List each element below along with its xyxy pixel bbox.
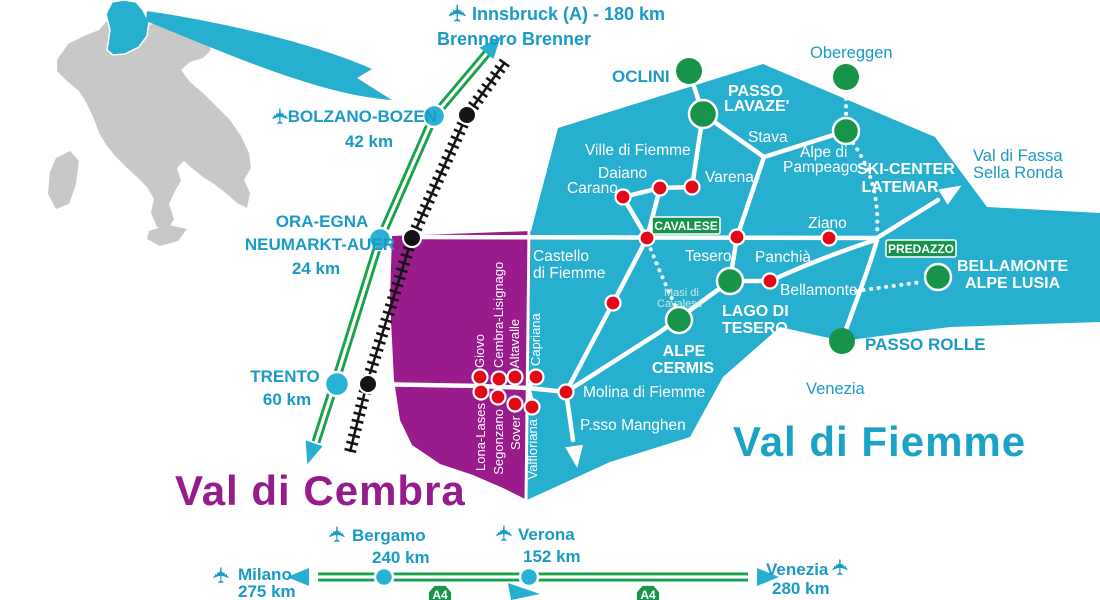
manghen-label: P.sso Manghen bbox=[580, 417, 686, 434]
town-dot-ziano bbox=[822, 231, 837, 246]
sover-label: Sover bbox=[508, 415, 523, 450]
airport-milano-icon: ✈ bbox=[209, 566, 234, 584]
ora-label-2: NEUMARKT-AUER bbox=[245, 235, 395, 254]
castello-label-1: Castello bbox=[533, 248, 589, 265]
masi-label-2: Cavalese bbox=[657, 298, 703, 310]
alpe-cermis-label-1: ALPE bbox=[663, 343, 706, 360]
trento-label: TRENTO bbox=[250, 367, 320, 386]
ski-dot-obereggen bbox=[833, 64, 859, 90]
milano-km: 275 km bbox=[238, 582, 296, 600]
giovo-label: Giovo bbox=[472, 334, 487, 368]
cavalese-badge: CAVALESE bbox=[652, 217, 720, 234]
verona-km: 152 km bbox=[523, 547, 581, 566]
stava-label: Stava bbox=[748, 129, 788, 146]
station-dot-trento bbox=[359, 375, 377, 393]
venezia-label: Venezia bbox=[766, 560, 829, 579]
val-di-fassa-label-2: Sella Ronda bbox=[973, 164, 1064, 182]
varena-label: Varena bbox=[705, 169, 754, 186]
town-dot-varena bbox=[685, 180, 700, 195]
segonzano-label: Segonzano bbox=[491, 409, 506, 475]
bellamonte-label: Bellamonte bbox=[780, 282, 858, 299]
predazzo-badge: PREDAZZO bbox=[886, 240, 956, 257]
predazzo-badge-label: PREDAZZO bbox=[888, 242, 954, 256]
a4-badge-west: A4 bbox=[428, 585, 452, 600]
town-dot-giovo bbox=[473, 370, 488, 385]
ski-dot-alpe-lusia bbox=[925, 264, 951, 290]
val-di-fassa-label-1: Val di Fassa bbox=[973, 147, 1063, 165]
city-dot-verona bbox=[520, 568, 538, 586]
ski-dot-alpe-cermis bbox=[666, 307, 692, 333]
alpe-lusia-label-2: ALPE LUSIA bbox=[965, 275, 1061, 292]
airport-verona-icon: ✈ bbox=[492, 524, 517, 542]
innsbruck-label: Innsbruck (A) - 180 km bbox=[472, 4, 665, 24]
airport-venezia-icon: ✈ bbox=[828, 558, 853, 576]
town-dot-capriana bbox=[529, 370, 544, 385]
carano-label: Carano bbox=[567, 180, 618, 197]
a4-badge-east: A4 bbox=[636, 585, 660, 600]
city-dot-trento bbox=[325, 372, 349, 396]
brenner-arrow-south bbox=[299, 441, 323, 467]
town-dot-segonzano bbox=[491, 390, 506, 405]
station-dot-ora bbox=[403, 229, 421, 247]
val-di-cembra-title: Val di Cembra bbox=[175, 467, 466, 514]
verona-label: Verona bbox=[518, 525, 575, 544]
ski-dot-passo-lavaze bbox=[689, 100, 717, 128]
bergamo-label: Bergamo bbox=[352, 526, 426, 545]
city-dot-bergamo bbox=[375, 568, 393, 586]
alpe-cermis-label-2: CERMIS bbox=[652, 360, 715, 377]
town-dot-cembra bbox=[492, 372, 507, 387]
cavalese-badge-label: CAVALESE bbox=[654, 219, 718, 233]
sardinia-silhouette bbox=[48, 151, 79, 209]
venezia-direction-label: Venezia bbox=[806, 380, 866, 398]
latemar-label-1: SKI-CENTER bbox=[857, 161, 955, 178]
town-dot-tesero bbox=[730, 230, 745, 245]
town-dot-altavalle bbox=[508, 370, 523, 385]
latemar-label-2: LATEMAR bbox=[861, 179, 938, 196]
airport-bergamo-icon: ✈ bbox=[325, 525, 350, 543]
passo-rolle-label: PASSO ROLLE bbox=[865, 335, 986, 354]
ski-dot-lago-di-tesero bbox=[717, 268, 743, 294]
ora-label-1: ORA-EGNA bbox=[276, 212, 369, 231]
molina-label: Molina di Fiemme bbox=[583, 384, 705, 401]
airport-innsbruck-icon: ✈ bbox=[445, 3, 472, 23]
panchia-label: Panchià bbox=[755, 249, 811, 266]
lago-di-tesero-label-2: TESERO bbox=[722, 320, 788, 337]
sicily-silhouette bbox=[147, 225, 187, 246]
venezia-km: 280 km bbox=[772, 579, 830, 598]
town-dot-castello bbox=[606, 296, 621, 311]
alpe-lusia-label-1: BELLAMONTE bbox=[957, 258, 1068, 275]
town-dot-lona-lases bbox=[474, 385, 489, 400]
a4-badge-west-label: A4 bbox=[432, 588, 448, 600]
brennero-label: Brennero Brenner bbox=[437, 29, 591, 49]
valfloriana-label: Valfloriana bbox=[525, 418, 540, 479]
town-dot-sover bbox=[508, 397, 523, 412]
passo-lavaze-label-2: LAVAZE' bbox=[724, 98, 789, 115]
a4-badge-east-label: A4 bbox=[640, 588, 656, 600]
ski-dot-pampeago bbox=[833, 118, 859, 144]
town-dot-valfloriana bbox=[525, 400, 540, 415]
cembra-lisignago-label: Cembra-Lisignago bbox=[491, 262, 506, 368]
val-di-fiemme-title: Val di Fiemme bbox=[733, 418, 1026, 465]
lona-lases-label: Lona-Lases bbox=[473, 403, 488, 471]
ora-km: 24 km bbox=[292, 259, 340, 278]
town-dot-molina bbox=[559, 385, 574, 400]
ville-di-fiemme-label: Ville di Fiemme bbox=[585, 142, 691, 159]
ski-dot-oclini bbox=[676, 58, 702, 84]
ski-dot-passo-rolle bbox=[829, 328, 855, 354]
tesero-label: Tesero bbox=[685, 248, 732, 265]
oclini-label: OCLINI bbox=[612, 67, 670, 86]
obereggen-label: Obereggen bbox=[810, 44, 893, 62]
bolzano-km: 42 km bbox=[345, 132, 393, 151]
station-dot-bolzano bbox=[458, 106, 476, 124]
town-dot-daiano bbox=[653, 181, 668, 196]
pampeago-label-2: Pampeago bbox=[783, 159, 858, 176]
lago-di-tesero-label-1: LAGO DI bbox=[722, 303, 789, 320]
town-dot-panchia bbox=[763, 274, 778, 289]
ziano-label: Ziano bbox=[808, 215, 847, 232]
bolzano-label: BOLZANO-BOZEN bbox=[288, 107, 437, 126]
capriana-label: Capriana bbox=[528, 312, 543, 366]
bergamo-km: 240 km bbox=[372, 548, 430, 567]
valley-access-map: A4 A4 bbox=[0, 0, 1100, 600]
altavalle-label: Altavalle bbox=[507, 319, 522, 368]
castello-label-2: di Fiemme bbox=[533, 265, 605, 282]
trento-km: 60 km bbox=[263, 390, 311, 409]
